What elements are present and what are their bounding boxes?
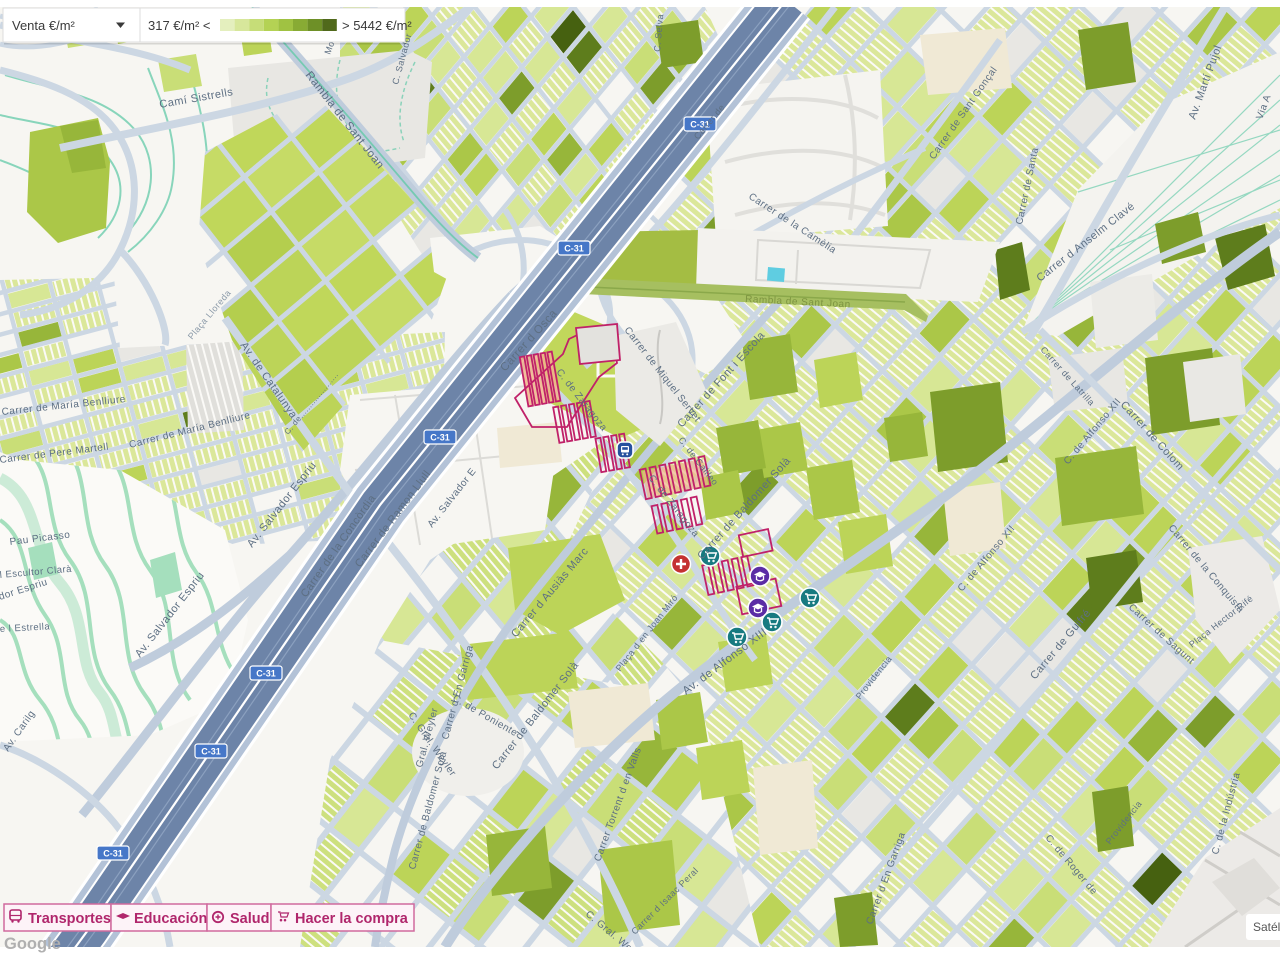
svg-text:Salud: Salud <box>230 911 269 927</box>
svg-text:C-31: C-31 <box>256 669 276 679</box>
svg-text:C-31: C-31 <box>564 244 584 254</box>
svg-text:Hacer la compra: Hacer la compra <box>295 911 409 927</box>
svg-text:C-31: C-31 <box>201 747 221 757</box>
svg-text:Satél: Satél <box>1253 920 1280 934</box>
svg-text:Google: Google <box>4 935 61 953</box>
svg-text:Venta €/m²: Venta €/m² <box>12 18 76 33</box>
svg-text:C-31: C-31 <box>103 849 123 859</box>
svg-text:Educación: Educación <box>134 911 207 927</box>
svg-text:> 5442 €/m²: > 5442 €/m² <box>342 18 412 33</box>
svg-text:317 €/m² <: 317 €/m² < <box>148 18 211 33</box>
svg-text:Transportes: Transportes <box>28 911 111 927</box>
svg-text:C-31: C-31 <box>430 433 450 443</box>
